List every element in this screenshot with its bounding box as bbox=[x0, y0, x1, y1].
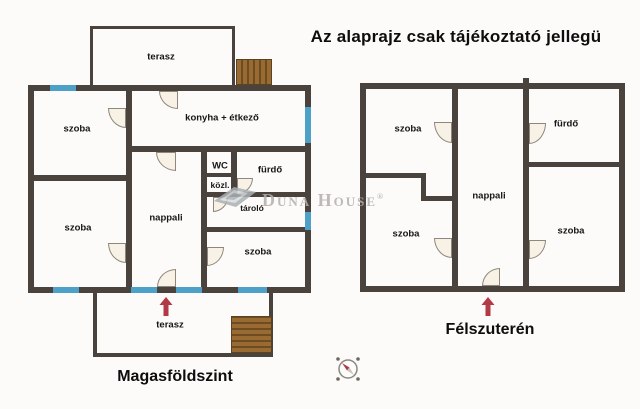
room-label-szoba: szoba bbox=[395, 124, 422, 135]
wall bbox=[360, 286, 625, 292]
stairs-icon bbox=[236, 59, 272, 85]
door-icon bbox=[529, 123, 546, 144]
window-icon bbox=[53, 287, 79, 293]
wall bbox=[452, 89, 458, 286]
room-label-szoba: szoba bbox=[393, 229, 420, 240]
stairs-icon bbox=[231, 316, 272, 353]
room-label-wc: WC bbox=[212, 161, 228, 172]
floor-name-felszuteren: Félszuterén bbox=[446, 321, 535, 339]
door-icon bbox=[156, 152, 176, 171]
door-icon bbox=[482, 268, 500, 286]
room-label-szoba: szoba bbox=[245, 247, 272, 258]
wall bbox=[421, 196, 452, 201]
wall bbox=[523, 78, 529, 83]
window-icon bbox=[50, 85, 76, 91]
window-icon bbox=[131, 287, 157, 293]
wall bbox=[126, 146, 311, 152]
room-label-nappali: nappali bbox=[472, 191, 505, 202]
wall bbox=[529, 162, 619, 167]
entrance-arrow-icon bbox=[481, 297, 495, 316]
wall bbox=[90, 26, 93, 85]
window-icon bbox=[305, 107, 311, 143]
wall bbox=[28, 175, 132, 181]
page-title: Az alaprajz csak tájékoztató jellegü bbox=[311, 27, 602, 47]
wall bbox=[126, 85, 132, 293]
compass-icon bbox=[333, 352, 363, 386]
window-icon bbox=[176, 287, 202, 293]
room-label-nappali: nappali bbox=[149, 213, 182, 224]
door-icon bbox=[207, 247, 224, 266]
floor-plan-page: Az alaprajz csak tájékoztató jellegü bbox=[0, 0, 640, 409]
floor-name-magasfoldszint: Magasföldszint bbox=[117, 368, 233, 386]
wall bbox=[366, 173, 422, 178]
wall bbox=[28, 85, 34, 293]
wall bbox=[360, 83, 366, 292]
wall bbox=[232, 26, 235, 85]
wall bbox=[619, 83, 625, 292]
door-icon bbox=[108, 243, 126, 263]
door-icon bbox=[157, 269, 176, 287]
door-icon bbox=[434, 238, 452, 258]
door-icon bbox=[529, 240, 546, 259]
wall bbox=[201, 173, 237, 177]
room-label-terasz: terasz bbox=[156, 320, 183, 331]
window-icon bbox=[238, 287, 267, 293]
wall bbox=[201, 227, 311, 232]
room-label-furdo: fürdő bbox=[258, 165, 282, 176]
wall bbox=[93, 293, 97, 357]
door-icon bbox=[213, 197, 228, 212]
wall bbox=[201, 146, 207, 293]
room-label-kozl: közl. bbox=[211, 180, 230, 190]
window-icon bbox=[305, 212, 311, 230]
wall bbox=[93, 353, 273, 357]
entrance-arrow-icon bbox=[159, 297, 173, 316]
room-label-konyha-etkezo: konyha + étkező bbox=[185, 113, 259, 124]
wall bbox=[360, 83, 625, 89]
room-label-tarolo: tároló bbox=[240, 203, 264, 213]
room-label-szoba: szoba bbox=[558, 226, 585, 237]
room-label-szoba: szoba bbox=[64, 124, 91, 135]
door-icon bbox=[159, 91, 178, 109]
door-icon bbox=[434, 122, 452, 143]
room-label-szoba: szoba bbox=[65, 223, 92, 234]
door-icon bbox=[108, 108, 126, 128]
room-label-furdo: fürdő bbox=[554, 119, 578, 130]
room-label-terasz: terasz bbox=[147, 52, 174, 63]
wall bbox=[90, 26, 235, 29]
